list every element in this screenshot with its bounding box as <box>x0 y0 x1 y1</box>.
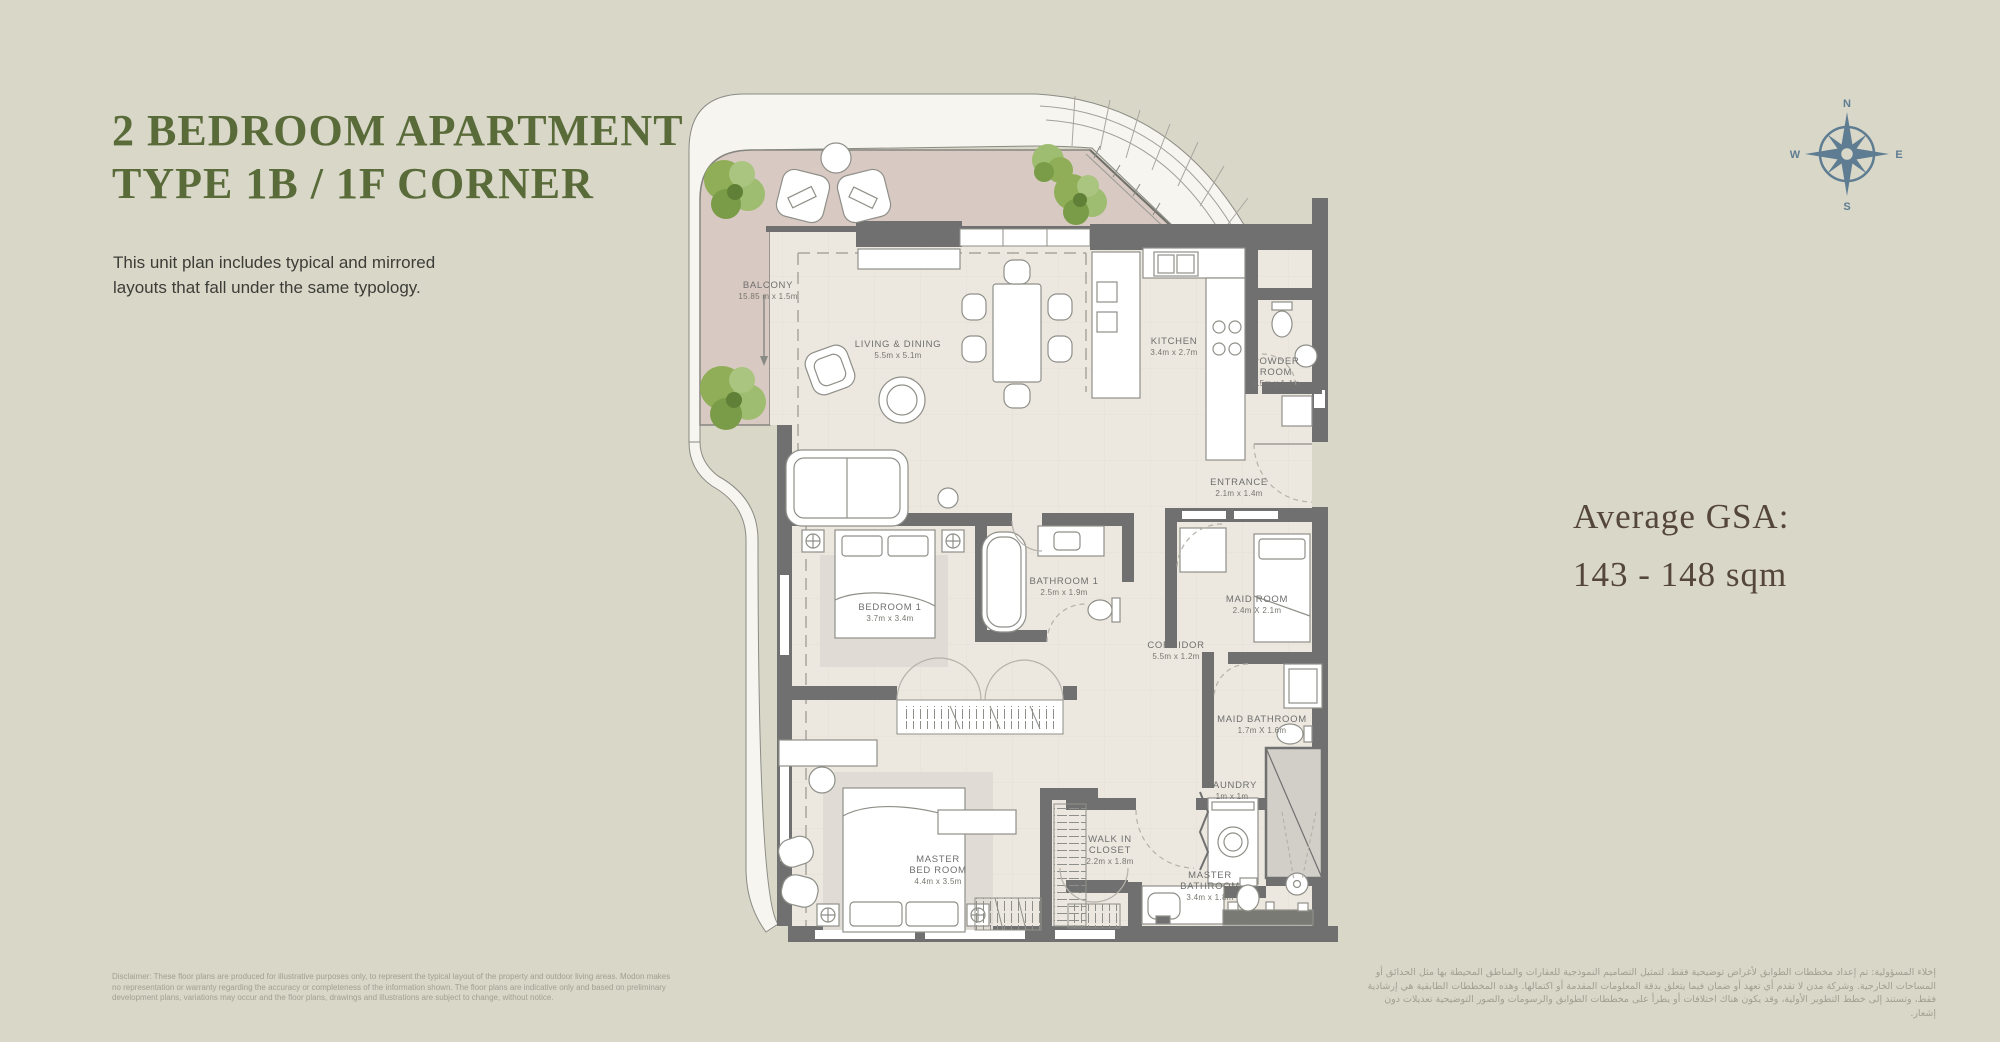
bathtub-icon <box>982 532 1026 632</box>
compass-north: N <box>1843 98 1851 110</box>
tv-console <box>858 249 960 269</box>
vanity <box>1038 526 1104 556</box>
kitchen-island <box>1092 252 1140 398</box>
shower-icon <box>1284 664 1322 708</box>
brochure-page: 2 BEDROOM APARTMENT TYPE 1B / 1F CORNER … <box>0 0 2000 1042</box>
compass-icon: N E S W <box>1785 92 1909 216</box>
compass-south: S <box>1843 201 1850 213</box>
kitchen-counter <box>1206 278 1245 460</box>
gsa-value: 143 - 148 sqm <box>1573 546 1789 604</box>
counter <box>1223 910 1313 925</box>
toilet-icon <box>1277 724 1312 744</box>
basin-icon <box>1295 345 1317 367</box>
disclaimer-english: Disclaimer: These floor plans are produc… <box>112 972 672 1004</box>
toilet-icon <box>1088 598 1120 622</box>
compass-west: W <box>1790 149 1801 161</box>
desk <box>779 740 877 766</box>
desk-chair <box>809 767 835 793</box>
washer-icon <box>1208 798 1258 884</box>
page-title: 2 BEDROOM APARTMENT TYPE 1B / 1F CORNER <box>112 104 684 210</box>
title-line-1: 2 BEDROOM APARTMENT <box>112 104 684 157</box>
typology-note: This unit plan includes typical and mirr… <box>113 250 435 300</box>
disclaimer-arabic: إخلاء المسؤولية: تم إعداد مخططات الطوابق… <box>1356 966 1936 1020</box>
toilet-icon <box>1272 302 1292 337</box>
average-gsa: Average GSA: 143 - 148 sqm <box>1573 488 1789 604</box>
sliding-door-panel <box>856 221 962 247</box>
toilet-icon <box>1237 878 1259 911</box>
entry-cabinet <box>1282 396 1312 426</box>
dining-table <box>993 284 1041 382</box>
gsa-label: Average GSA: <box>1573 488 1789 546</box>
compass-east: E <box>1895 149 1902 161</box>
service-shaft <box>1266 748 1322 878</box>
maid-desk <box>1180 528 1226 572</box>
title-line-2: TYPE 1B / 1F CORNER <box>112 157 684 210</box>
dresser <box>938 810 1016 834</box>
